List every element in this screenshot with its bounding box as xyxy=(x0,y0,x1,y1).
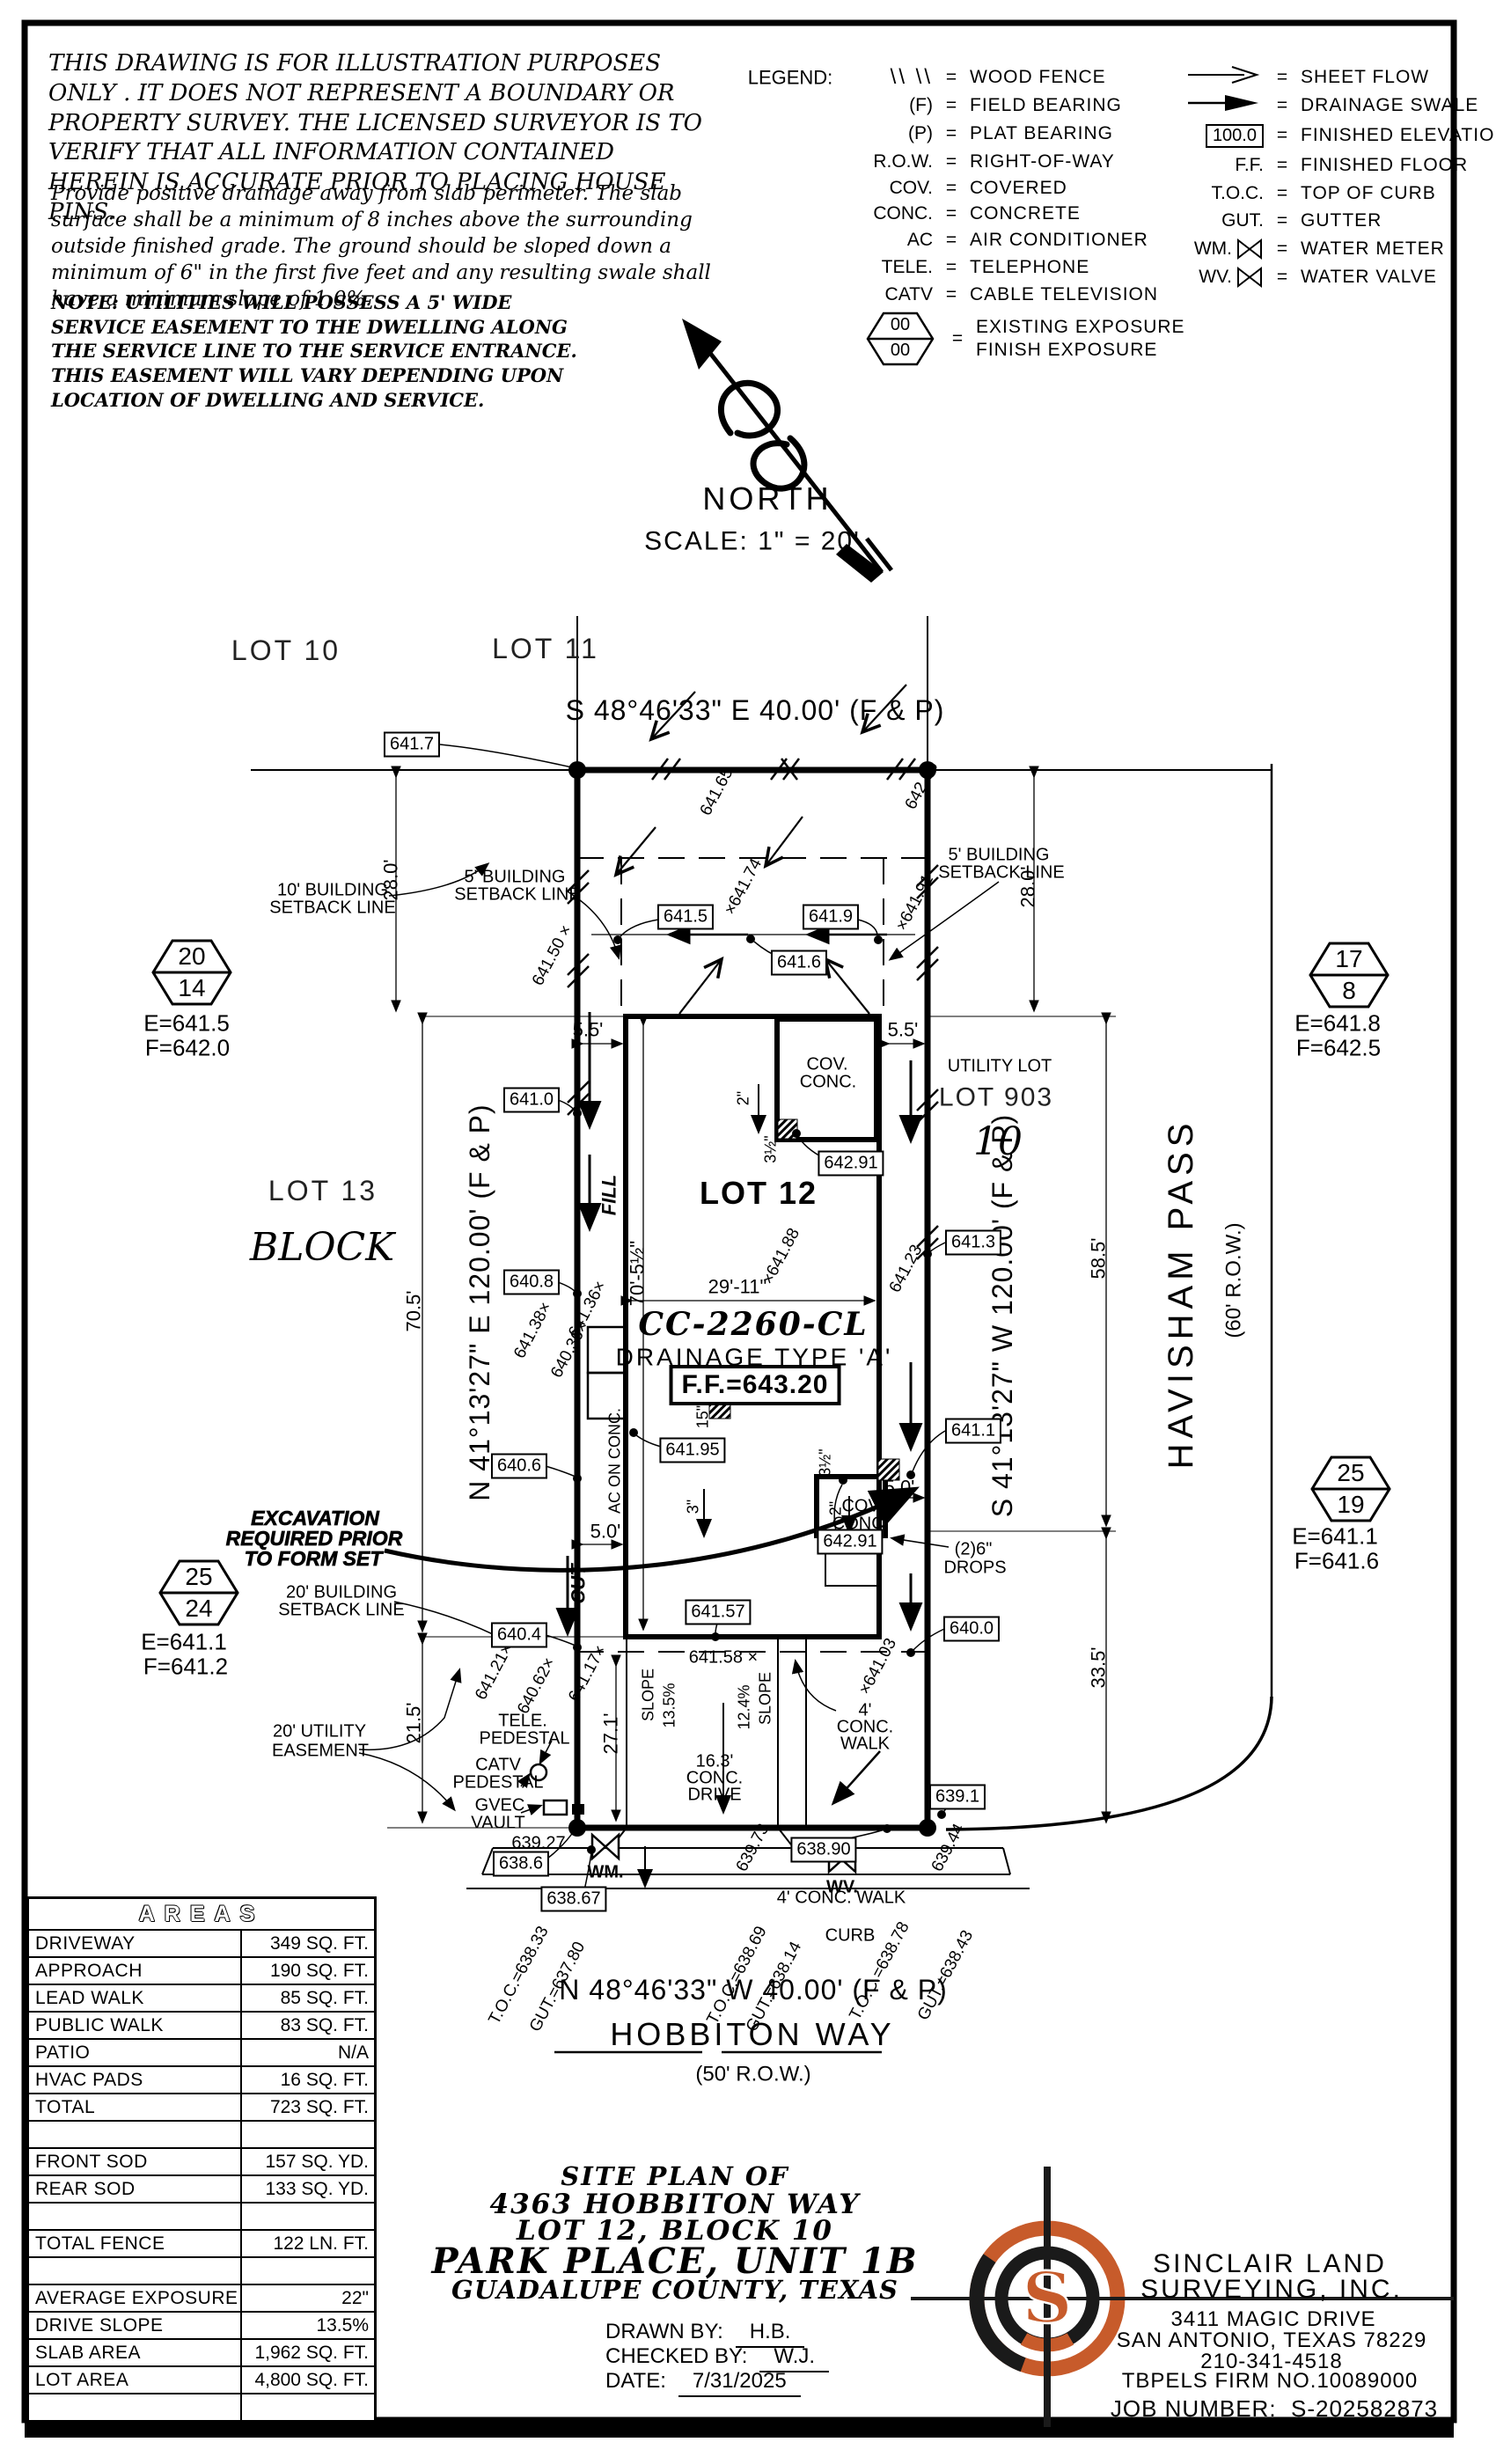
finished-elevation-label: 640.6 xyxy=(491,1454,547,1479)
legend-row-catv: CATV = CABLE TELEVISION xyxy=(840,282,1158,308)
titleblock-line1: SITE PLAN OF xyxy=(561,2161,788,2191)
areas-row: AVERAGE EXPOSURE22" xyxy=(29,2285,374,2313)
areas-row: PUBLIC WALK83 SQ. FT. xyxy=(29,2013,374,2040)
areas-row: PATION/A xyxy=(29,2040,374,2067)
finished-elevation-label: 640.0 xyxy=(943,1617,1000,1642)
job-number-value: S-202582873 xyxy=(1291,2395,1438,2422)
finished-elevation-label: 638.90 xyxy=(790,1837,856,1863)
areas-row: LEAD WALK85 SQ. FT. xyxy=(29,1985,374,2013)
finished-elevation-label: 640.8 xyxy=(503,1270,560,1295)
finished-elevation-label: 641.95 xyxy=(659,1438,725,1463)
finished-elevation-label: 641.9 xyxy=(803,905,859,930)
exposure-marker-25-24: 25 24 xyxy=(158,1558,239,1628)
exposure-marker-25-19: 25 19 xyxy=(1310,1454,1391,1524)
wood-fence-icon: \\ \\ xyxy=(840,65,933,90)
areas-row: REAR SOD133 SQ. YD. xyxy=(29,2176,374,2204)
job-number-row: JOB NUMBER: S-202582873 xyxy=(1111,2395,1438,2423)
legend-row-concrete: CONC. = CONCRETE xyxy=(840,201,1081,227)
date-value: 7/31/2025 xyxy=(678,2369,801,2397)
areas-row: HVAC PADS16 SQ. FT. xyxy=(29,2067,374,2094)
finished-elevation-label: 638.67 xyxy=(540,1887,606,1912)
finished-elevation-label: 639.1 xyxy=(929,1785,986,1810)
legend-row-ac: AC = AIR CONDITIONER xyxy=(840,227,1148,253)
areas-row: LOT AREA4,800 SQ. FT. xyxy=(29,2367,374,2394)
areas-row: TOTAL FENCE122 LN. FT. xyxy=(29,2231,374,2258)
exposure-hex-icon: 00 00 xyxy=(847,311,939,367)
legend-row-top-of-curb: T.O.C. = TOP OF CURB xyxy=(1160,180,1436,207)
legend-row-covered: COV. = COVERED xyxy=(840,175,1067,202)
areas-row xyxy=(29,2204,374,2231)
finished-elevation-label: 641.5 xyxy=(657,905,714,930)
areas-row: FRONT SOD157 SQ. YD. xyxy=(29,2149,374,2176)
finished-elevation-label: 641.1 xyxy=(945,1419,1001,1444)
finished-elevation-label: 641.6 xyxy=(771,950,827,976)
legend-row-row: R.O.W. = RIGHT-OF-WAY xyxy=(840,149,1115,175)
finished-elevation-label: 638.6 xyxy=(493,1852,549,1877)
areas-row xyxy=(29,2122,374,2149)
exposure-marker-17-8: 17 8 xyxy=(1309,940,1390,1010)
legend-row-gutter: GUT. = GUTTER xyxy=(1160,208,1382,234)
areas-row: DRIVEWAY349 SQ. FT. xyxy=(29,1931,374,1958)
legend-row-field-bearing: (F) = FIELD BEARING xyxy=(840,92,1122,119)
areas-row: SLAB AREA1,962 SQ. FT. xyxy=(29,2340,374,2367)
areas-table-rows: DRIVEWAY349 SQ. FT.APPROACH190 SQ. FT.LE… xyxy=(29,1931,374,2422)
water-meter-icon xyxy=(1236,238,1264,260)
legend-row-finished-elevation: 100.0 = FINISHED ELEVATION xyxy=(1160,122,1496,149)
titleblock-county: GUADALUPE COUNTY, TEXAS xyxy=(451,2275,898,2305)
date-row: DATE: 7/31/2025 xyxy=(605,2369,801,2397)
finished-elevation-label: 641.3 xyxy=(945,1230,1001,1256)
finished-elevation-label: 642.91 xyxy=(818,1151,884,1177)
finished-elevation-box: 100.0 xyxy=(1206,124,1264,148)
finished-elevation-label: 640.4 xyxy=(491,1623,547,1648)
legend-row-water-valve: WV. = WATER VALVE xyxy=(1160,264,1437,290)
firm-name-line2: SURVEYING, INC. xyxy=(1140,2275,1403,2305)
finished-elevation-label: 641.0 xyxy=(503,1088,560,1113)
legend-row-sheet-flow: = SHEET FLOW xyxy=(1160,64,1429,91)
drainage-swale-icon xyxy=(1160,92,1264,119)
finished-elevation-label: 641.7 xyxy=(384,732,440,758)
site-plan-sheet: S THIS DRAWING IS FOR ILLUSTRATION PURPO… xyxy=(0,0,1496,2464)
water-valve-icon xyxy=(1236,266,1264,289)
areas-table-title: AREAS xyxy=(29,1899,374,1931)
exposure-marker-20-14: 20 14 xyxy=(151,937,232,1008)
areas-row: TOTAL723 SQ. FT. xyxy=(29,2094,374,2122)
legend-row-water-meter: WM. = WATER METER xyxy=(1160,236,1445,262)
sheet-flow-icon xyxy=(1160,64,1264,91)
legend-row-drainage-swale: = DRAINAGE SWALE xyxy=(1160,92,1478,119)
legend-title: LEGEND: xyxy=(748,67,833,87)
legend-row-exposure: 00 00 = EXISTING EXPOSURE FINISH EXPOSUR… xyxy=(847,310,1185,368)
legend-row-plat-bearing: (P) = PLAT BEARING xyxy=(840,121,1113,147)
finished-elevation-label: 641.57 xyxy=(685,1600,751,1625)
areas-row: APPROACH190 SQ. FT. xyxy=(29,1958,374,1985)
areas-row xyxy=(29,2394,374,2422)
finished-floor-label: F.F.=643.20 xyxy=(670,1365,841,1405)
legend-row-finished-floor: F.F. = FINISHED FLOOR xyxy=(1160,152,1468,179)
firm-number: TBPELS FIRM NO.10089000 xyxy=(1122,2369,1418,2394)
legend-row-tele: TELE. = TELEPHONE xyxy=(840,254,1089,281)
areas-row xyxy=(29,2258,374,2285)
areas-table: AREAS DRIVEWAY349 SQ. FT.APPROACH190 SQ.… xyxy=(26,1896,377,2424)
legend-row-wood-fence: \\ \\ = WOOD FENCE xyxy=(840,64,1106,91)
areas-row: DRIVE SLOPE13.5% xyxy=(29,2313,374,2340)
finished-elevation-label: 642.91 xyxy=(817,1529,883,1555)
